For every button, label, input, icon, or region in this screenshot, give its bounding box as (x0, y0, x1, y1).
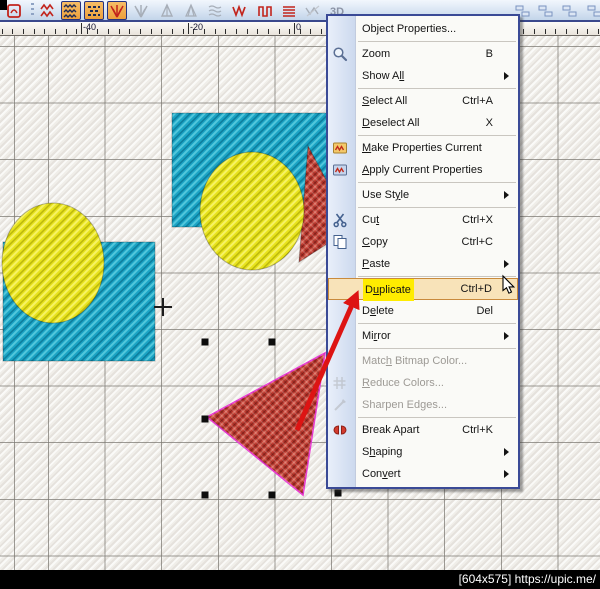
menu-item-match-bitmap-color: Match Bitmap Color... (328, 350, 518, 372)
menu-item-label: Apply Current Properties (362, 159, 482, 181)
menu-item-shortcut: B (486, 43, 493, 65)
menu-item-break-apart[interactable]: Break ApartCtrl+K (328, 419, 518, 441)
menu-item-reduce-colors: Reduce Colors... (328, 372, 518, 394)
menu-separator (358, 41, 516, 42)
circle-left[interactable] (2, 203, 104, 323)
menu-item-label: Reduce Colors... (362, 372, 444, 394)
menu-item-delete[interactable]: DeleteDel (328, 300, 518, 322)
menu-item-shortcut: Ctrl+C (462, 231, 493, 253)
submenu-arrow-icon (504, 332, 509, 340)
zoom-icon (332, 46, 348, 62)
make-props-icon (332, 140, 348, 156)
menu-item-label: Mirror (362, 325, 391, 347)
menu-separator (358, 88, 516, 89)
break-apart-icon (332, 422, 348, 438)
menu-item-convert[interactable]: Convert (328, 463, 518, 485)
menu-item-shortcut: Ctrl+D (461, 279, 492, 299)
menu-item-label: Zoom (362, 43, 390, 65)
submenu-arrow-icon (504, 191, 509, 199)
menu-item-paste[interactable]: Paste (328, 253, 518, 275)
submenu-arrow-icon (504, 260, 509, 268)
menu-item-cut[interactable]: CutCtrl+X (328, 209, 518, 231)
selection-handle[interactable] (202, 416, 209, 423)
menu-item-use-style[interactable]: Use Style (328, 184, 518, 206)
cut-icon (332, 212, 348, 228)
menu-item-mirror[interactable]: Mirror (328, 325, 518, 347)
menu-item-label: Match Bitmap Color... (362, 350, 467, 372)
menu-separator (358, 323, 516, 324)
submenu-arrow-icon (504, 72, 509, 80)
selection-handle[interactable] (335, 490, 342, 497)
copy-icon (332, 234, 348, 250)
menu-item-apply-current-properties[interactable]: Apply Current Properties (328, 159, 518, 181)
selection-handle[interactable] (202, 492, 209, 499)
menu-item-show-all[interactable]: Show All (328, 65, 518, 87)
menu-item-label: Duplicate (363, 279, 414, 301)
selection-handle[interactable] (202, 339, 209, 346)
submenu-arrow-icon (504, 470, 509, 478)
menu-item-shortcut: Del (476, 300, 493, 322)
apply-props-icon (332, 162, 348, 178)
menu-item-label: Sharpen Edges... (362, 394, 447, 416)
menu-item-zoom[interactable]: ZoomB (328, 43, 518, 65)
menu-item-label: Use Style (362, 184, 409, 206)
context-menu: Object Properties...ZoomBShow AllSelect … (326, 14, 520, 489)
menu-item-shaping[interactable]: Shaping (328, 441, 518, 463)
menu-item-label: Shaping (362, 441, 402, 463)
menu-separator (358, 348, 516, 349)
watermark-bar: [604x575] https://upic.me/ (0, 570, 600, 589)
crosshair-cursor (154, 298, 172, 316)
menu-item-object-properties[interactable]: Object Properties... (328, 18, 518, 40)
menu-item-sharpen-edges: Sharpen Edges... (328, 394, 518, 416)
reduce-icon (332, 375, 348, 391)
triangle-selected-weave (207, 353, 325, 495)
menu-item-label: Object Properties... (362, 18, 456, 40)
menu-item-shortcut: Ctrl+K (462, 419, 493, 441)
menu-item-shortcut: Ctrl+A (462, 90, 493, 112)
menu-item-label: Show All (362, 65, 404, 87)
menu-item-label: Select All (362, 90, 407, 112)
menu-item-deselect-all[interactable]: Deselect AllX (328, 112, 518, 134)
circle-top[interactable] (200, 152, 304, 270)
embroidery-app-window: 3D -40-200 Object Properties...ZoomBShow… (0, 0, 600, 589)
menu-item-shortcut: X (486, 112, 493, 134)
menu-separator (358, 417, 516, 418)
sharpen-icon (332, 397, 348, 413)
menu-item-label: Copy (362, 231, 388, 253)
menu-separator (358, 182, 516, 183)
menu-separator (358, 276, 516, 277)
menu-item-label: Break Apart (362, 419, 419, 441)
menu-item-make-properties-current[interactable]: Make Properties Current (328, 137, 518, 159)
menu-separator (358, 207, 516, 208)
selection-handle[interactable] (269, 492, 276, 499)
selection-handle[interactable] (269, 339, 276, 346)
submenu-arrow-icon (504, 448, 509, 456)
menu-item-label: Cut (362, 209, 379, 231)
menu-item-duplicate[interactable]: DuplicateCtrl+D (328, 278, 518, 300)
menu-item-label: Make Properties Current (362, 137, 482, 159)
menu-item-select-all[interactable]: Select AllCtrl+A (328, 90, 518, 112)
menu-item-label: Delete (362, 300, 394, 322)
menu-item-copy[interactable]: CopyCtrl+C (328, 231, 518, 253)
menu-item-shortcut: Ctrl+X (462, 209, 493, 231)
watermark-text: [604x575] https://upic.me/ (459, 572, 596, 586)
menu-separator (358, 135, 516, 136)
menu-item-label: Convert (362, 463, 401, 485)
menu-item-label: Paste (362, 253, 390, 275)
menu-item-label: Deselect All (362, 112, 419, 134)
